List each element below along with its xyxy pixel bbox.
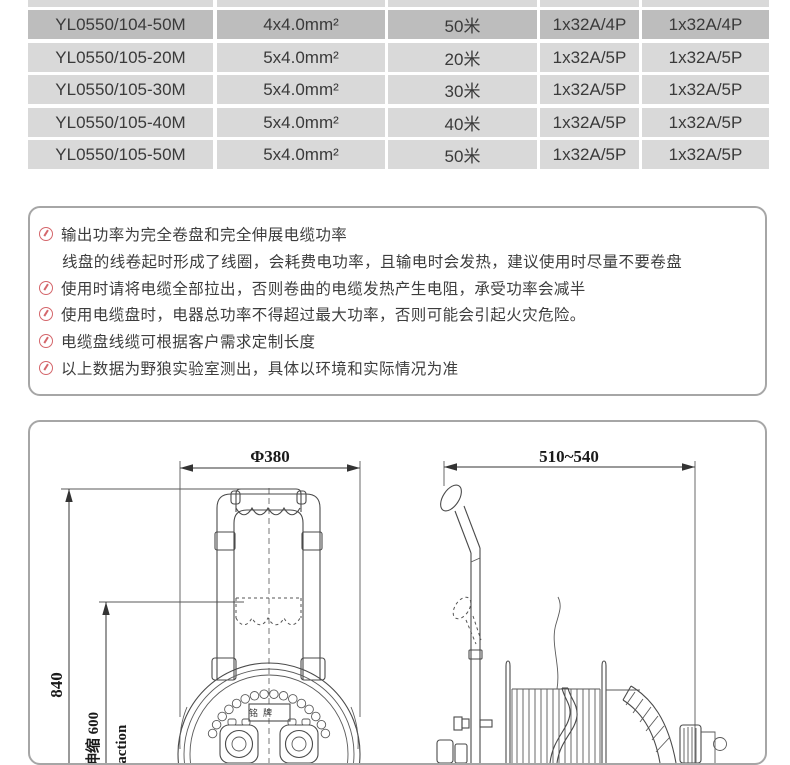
note-text: 使用时请将电缆全部拉出，否则卷曲的电缆发热产生电阻，承受功率会减半: [61, 277, 586, 299]
table-row-partial: [28, 0, 769, 7]
model-cell: YL0550/105-40M: [28, 108, 213, 137]
note-item: 以上数据为野狼实验室测出，具体以环境和实际情况为准: [39, 354, 755, 381]
plug-cell: 1x32A/5P: [540, 140, 639, 169]
note-item: 输出功率为完全卷盘和完全伸展电缆功率: [39, 221, 755, 248]
technical-drawing: Φ380 840 伸缩 600 traction: [30, 422, 765, 763]
cable-end: [554, 597, 560, 689]
socket-cell: 1x32A/5P: [642, 108, 769, 137]
length-cell: 20米: [388, 43, 537, 72]
spec-cell: [217, 0, 385, 7]
base-feet: [437, 740, 467, 763]
table-row: YL0550/104-50M 4x4.0mm² 50米 1x32A/4P 1x3…: [28, 10, 769, 39]
table-row: YL0550/105-20M 5x4.0mm² 20米 1x32A/5P 1x3…: [28, 43, 769, 72]
length-cell: 50米: [388, 10, 537, 39]
note-text: 线盘的线卷起时形成了线圈，会耗费电功率，且输电时会发热，建议使用时尽量不要卷盘: [62, 250, 682, 272]
height-label: 840: [47, 672, 66, 698]
model-cell: YL0550/105-50M: [28, 140, 213, 169]
note-item: 线盘的线卷起时形成了线圈，会耗费电功率，且输电时会发热，建议使用时尽量不要卷盘: [39, 248, 755, 275]
note-text: 电缆盘线缆可根据客户需求定制长度: [61, 330, 315, 352]
note-bullet-icon: [39, 281, 53, 295]
spec-cell: 5x4.0mm²: [217, 108, 385, 137]
spec-cell: 4x4.0mm²: [217, 10, 385, 39]
spool-flange-left: [506, 661, 510, 763]
coiled-cable: [512, 689, 600, 763]
spec-cell: 5x4.0mm²: [217, 75, 385, 104]
drum-flange: [623, 686, 676, 763]
table-row: YL0550/105-30M 5x4.0mm² 30米 1x32A/5P 1x3…: [28, 75, 769, 104]
note-item: 使用时请将电缆全部拉出，否则卷曲的电缆发热产生电阻，承受功率会减半: [39, 274, 755, 301]
socket-cell: 1x32A/5P: [642, 75, 769, 104]
handle-hook: [436, 481, 465, 514]
technical-drawing-panel: Φ380 840 伸缩 600 traction: [28, 420, 767, 765]
model-cell: [28, 0, 213, 7]
note-bullet-icon: [39, 227, 53, 241]
length-cell: 30米: [388, 75, 537, 104]
note-text: 输出功率为完全卷盘和完全伸展电缆功率: [61, 223, 347, 245]
model-cell: YL0550/104-50M: [28, 10, 213, 39]
length-cell: 40米: [388, 108, 537, 137]
socket-cell: 1x32A/4P: [642, 10, 769, 39]
plug-cell: 1x32A/5P: [540, 108, 639, 137]
note-bullet-icon: [39, 361, 53, 375]
plug-cell: [540, 0, 639, 7]
side-view: 510~540: [436, 447, 726, 763]
model-cell: YL0550/105-30M: [28, 75, 213, 104]
spec-cell: 5x4.0mm²: [217, 140, 385, 169]
plug-cell: 1x32A/5P: [540, 43, 639, 72]
side-width-label: 510~540: [539, 447, 599, 466]
model-cell: YL0550/105-20M: [28, 43, 213, 72]
note-bullet-icon: [39, 334, 53, 348]
socket-cell: 1x32A/5P: [642, 140, 769, 169]
length-cell: 50米: [388, 140, 537, 169]
notes-panel: 输出功率为完全卷盘和完全伸展电缆功率 线盘的线卷起时形成了线圈，会耗费电功率，且…: [28, 206, 767, 396]
front-view: Φ380 840 伸缩 600 traction: [47, 447, 360, 763]
spool-flange-right: [602, 661, 606, 763]
hub-parts: [680, 725, 727, 763]
front-diameter-label: Φ380: [250, 447, 290, 466]
note-item: 使用电缆盘时，电器总功率不得超过最大功率，否则可能会引起火灾危险。: [39, 301, 755, 328]
plug-cell: 1x32A/5P: [540, 75, 639, 104]
plug-cell: 1x32A/4P: [540, 10, 639, 39]
note-bullet-icon: [39, 307, 53, 321]
length-cell: [388, 0, 537, 7]
socket-cell: [642, 0, 769, 7]
handle-grip: [236, 508, 300, 515]
socket-cell: 1x32A/5P: [642, 43, 769, 72]
table-row: YL0550/105-50M 5x4.0mm² 50米 1x32A/5P 1x3…: [28, 140, 769, 169]
note-text: 使用电缆盘时，电器总功率不得超过最大功率，否则可能会引起火灾危险。: [61, 303, 586, 325]
hook-dashed-position: [450, 594, 481, 644]
note-text: 以上数据为野狼实验室测出，具体以环境和实际情况为准: [61, 357, 459, 379]
clamp-bolt: [454, 717, 492, 730]
table-row: YL0550/105-40M 5x4.0mm² 40米 1x32A/5P 1x3…: [28, 108, 769, 137]
telescopic-label: 伸缩 600: [84, 712, 102, 763]
nameplate-label: 铭牌: [249, 707, 277, 718]
traction-label: traction: [114, 724, 130, 763]
note-item: 电缆盘线缆可根据客户需求定制长度: [39, 328, 755, 355]
spec-cell: 5x4.0mm²: [217, 43, 385, 72]
